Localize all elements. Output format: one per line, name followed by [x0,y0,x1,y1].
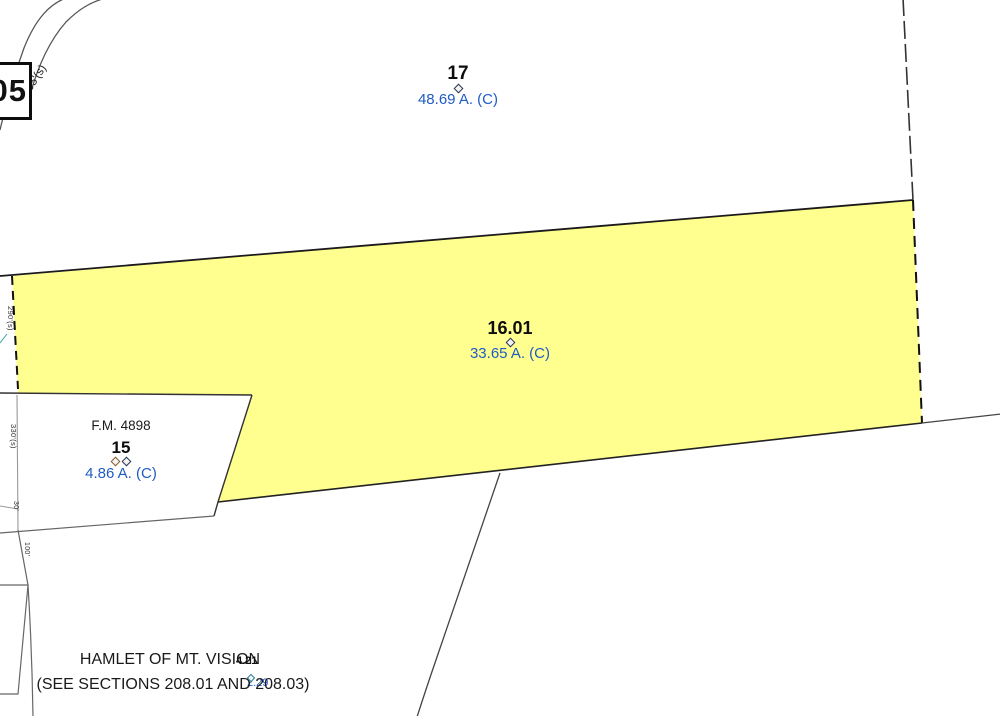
parcel-15-label-group[interactable]: F.M. 4898 15 4.86 A. (C) [60,418,182,482]
small-parcel-outline [0,585,28,694]
road-line-bottom-right [922,414,1000,423]
dimension-label-330: 330'(s) [9,424,18,449]
parcel-16-01-label-group[interactable]: 16.01 33.65 A. (C) [450,319,570,362]
boundary-parcel17-right [903,0,913,200]
parcel-15-number: 15 [60,438,182,457]
hamlet-note-line2: (SEE SECTIONS 208.01 AND 208.03) [32,676,314,694]
hamlet-note-line1: HAMLET OF MT. VISION [78,651,262,669]
tax-map-canvas: 05 1105'(s) 17 48.69 A. (C) 16.01 33.65 … [0,0,1000,716]
boundary-parcel15-bottom [0,516,214,533]
dimension-label-290: 290'(s) [6,306,15,331]
parcel-17-acreage: 48.69 A. (C) [398,92,518,108]
parcel-15-fm-reference: F.M. 4898 [60,418,182,434]
route-shield-label: 05 [0,73,27,109]
parcel-4-21-centroid-marker [247,674,255,682]
parcel-17-label-group[interactable]: 17 48.69 A. (C) [398,64,518,108]
parcel-16-01-number: 16.01 [450,319,570,338]
parcel-17-number: 17 [398,64,518,84]
road-edge-lower-left [18,530,33,716]
parcel-4-21-number[interactable]: 4.21 [236,655,257,667]
parcel-16-01-acreage: 33.65 A. (C) [450,346,570,362]
stream-tick [0,334,7,343]
boundary-center-descending [417,473,500,716]
dimension-label-30: 30' [12,501,19,511]
parcel-15-acreage: 4.86 A. (C) [60,465,182,482]
route-shield-box: 05 [0,62,32,120]
dimension-label-100: 100' [23,542,30,556]
